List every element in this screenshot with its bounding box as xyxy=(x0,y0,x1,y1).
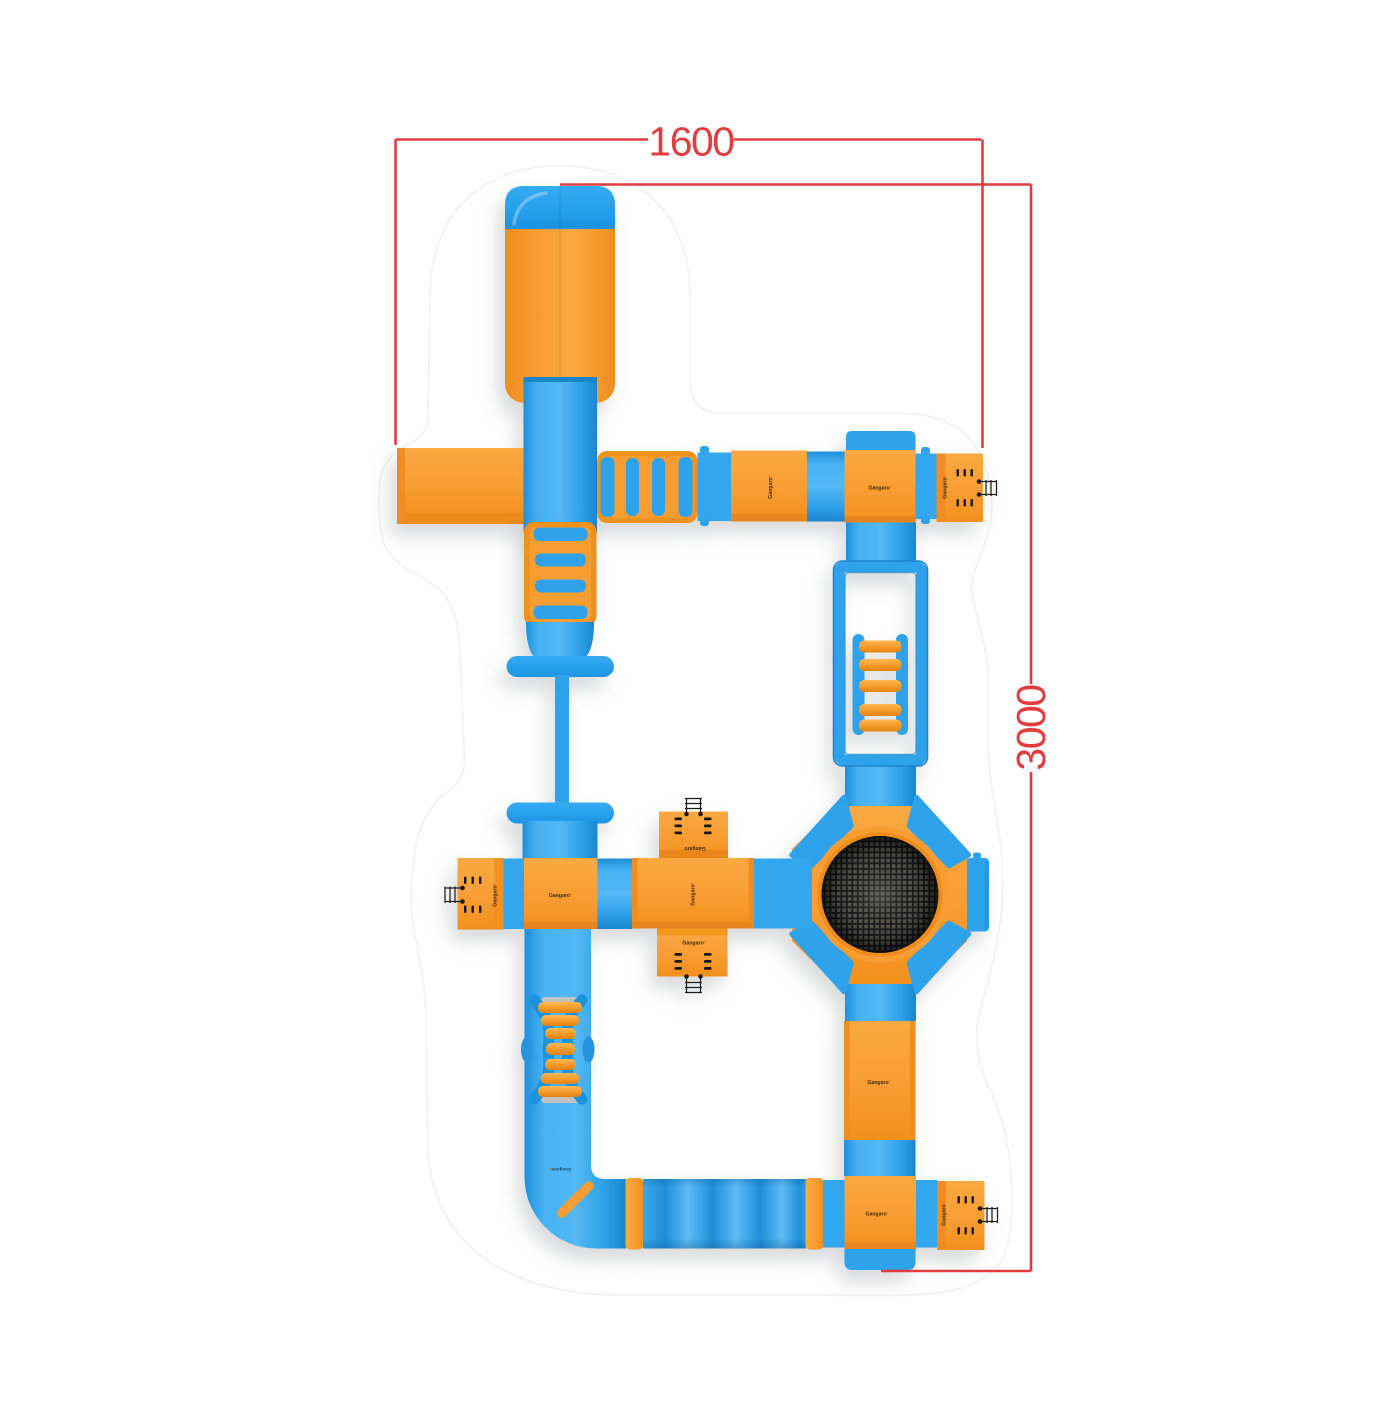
svg-text:Gangaro*: Gangaro* xyxy=(943,474,949,498)
svg-text:Gangaro*: Gangaro* xyxy=(868,486,892,492)
svg-text:Gangaro*: Gangaro* xyxy=(865,1212,889,1218)
svg-text:Gangaro*: Gangaro* xyxy=(493,882,499,906)
svg-text:Gangaro*: Gangaro* xyxy=(682,941,706,947)
svg-text:3000: 3000 xyxy=(1008,685,1054,771)
svg-text:Gangaro*: Gangaro* xyxy=(768,474,774,498)
svg-text:●saofiwey: ●saofiwey xyxy=(548,1167,572,1173)
svg-text:Gangaro*: Gangaro* xyxy=(681,845,705,851)
svg-text:Gangaro*: Gangaro* xyxy=(942,1201,948,1225)
svg-text:Gangaro*: Gangaro* xyxy=(549,893,573,899)
svg-text:Gangaro*: Gangaro* xyxy=(867,1080,891,1086)
svg-text:Gangaro*: Gangaro* xyxy=(691,881,697,905)
svg-text:1600: 1600 xyxy=(648,119,734,165)
